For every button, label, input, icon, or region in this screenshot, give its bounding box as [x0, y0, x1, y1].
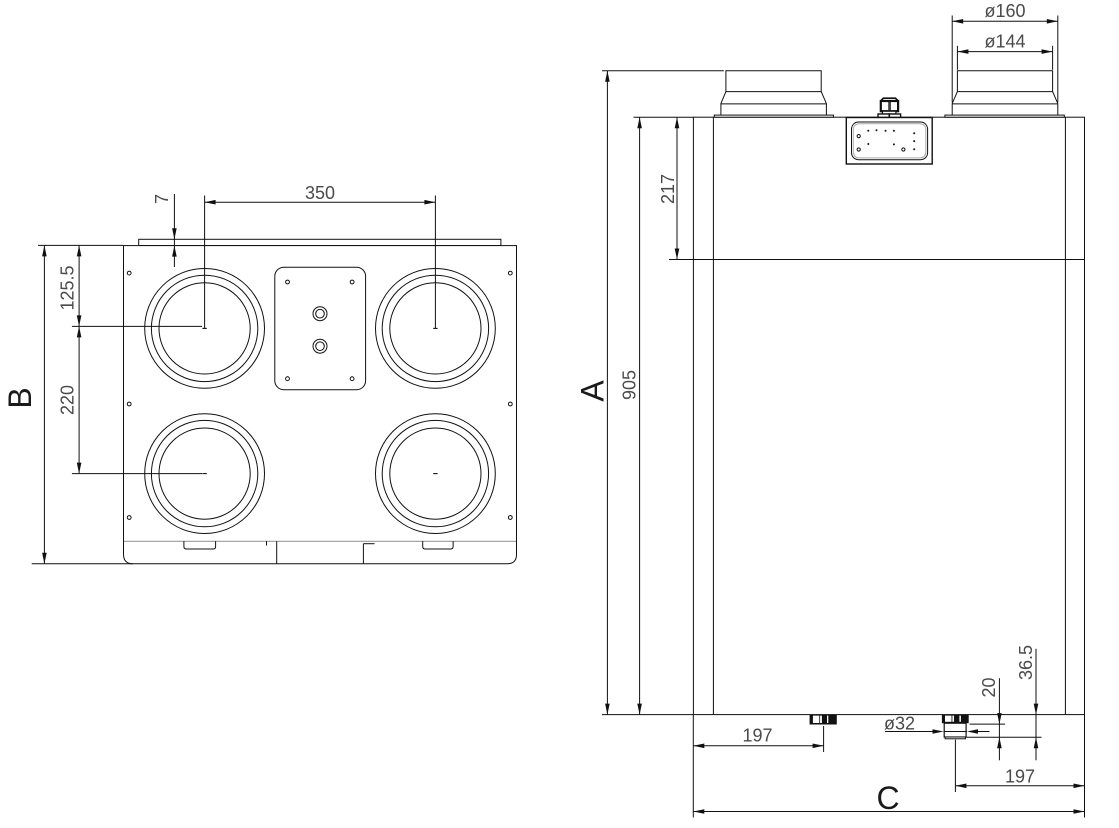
svg-text:197: 197 — [742, 726, 772, 746]
svg-text:7: 7 — [152, 194, 172, 204]
svg-text:905: 905 — [620, 370, 640, 400]
svg-text:ø144: ø144 — [984, 32, 1025, 52]
svg-text:197: 197 — [1005, 767, 1035, 787]
svg-text:125.5: 125.5 — [58, 265, 78, 310]
svg-text:ø32: ø32 — [884, 714, 915, 734]
svg-text:20: 20 — [979, 677, 999, 697]
svg-text:B: B — [2, 387, 38, 408]
svg-text:ø160: ø160 — [984, 1, 1025, 21]
svg-text:C: C — [876, 780, 899, 816]
svg-text:A: A — [575, 380, 611, 402]
svg-text:350: 350 — [305, 183, 335, 203]
svg-text:36.5: 36.5 — [1016, 645, 1036, 680]
svg-text:220: 220 — [58, 385, 78, 415]
svg-text:217: 217 — [658, 174, 678, 204]
